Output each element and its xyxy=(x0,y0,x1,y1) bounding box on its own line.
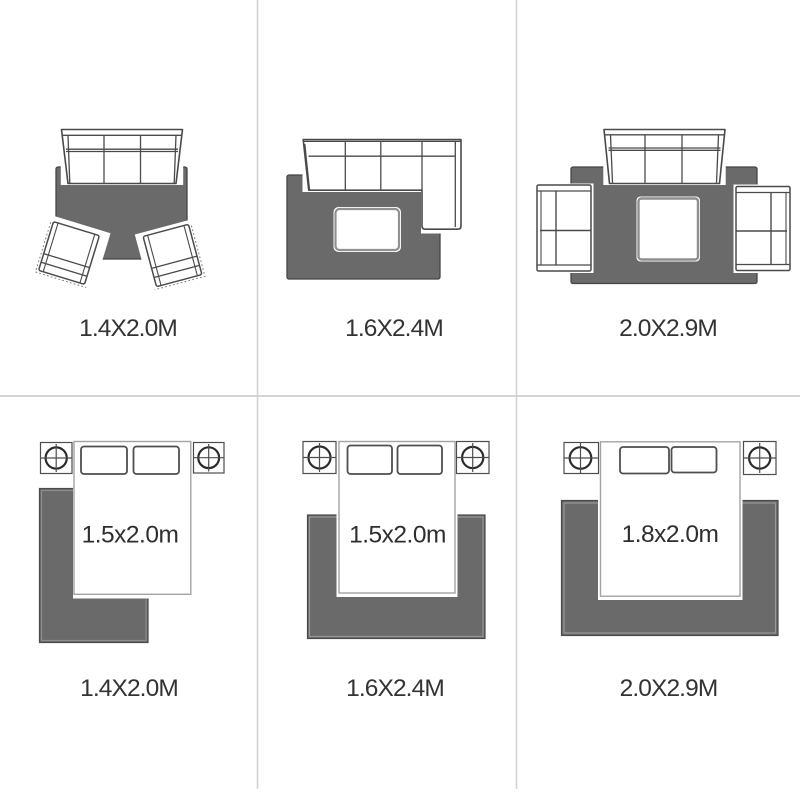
svg-text:1.5x2.0m: 1.5x2.0m xyxy=(82,522,179,549)
svg-text:1.4X2.0M: 1.4X2.0M xyxy=(80,675,178,702)
svg-text:2.0X2.9M: 2.0X2.9M xyxy=(619,315,717,342)
svg-text:1.4X2.0M: 1.4X2.0M xyxy=(79,315,177,342)
svg-text:1.8x2.0m: 1.8x2.0m xyxy=(622,521,719,548)
svg-text:1.5x2.0m: 1.5x2.0m xyxy=(349,522,446,549)
svg-text:1.6X2.4M: 1.6X2.4M xyxy=(345,315,443,342)
svg-text:1.6X2.4M: 1.6X2.4M xyxy=(346,675,444,702)
svg-text:2.0X2.9M: 2.0X2.9M xyxy=(620,675,718,702)
